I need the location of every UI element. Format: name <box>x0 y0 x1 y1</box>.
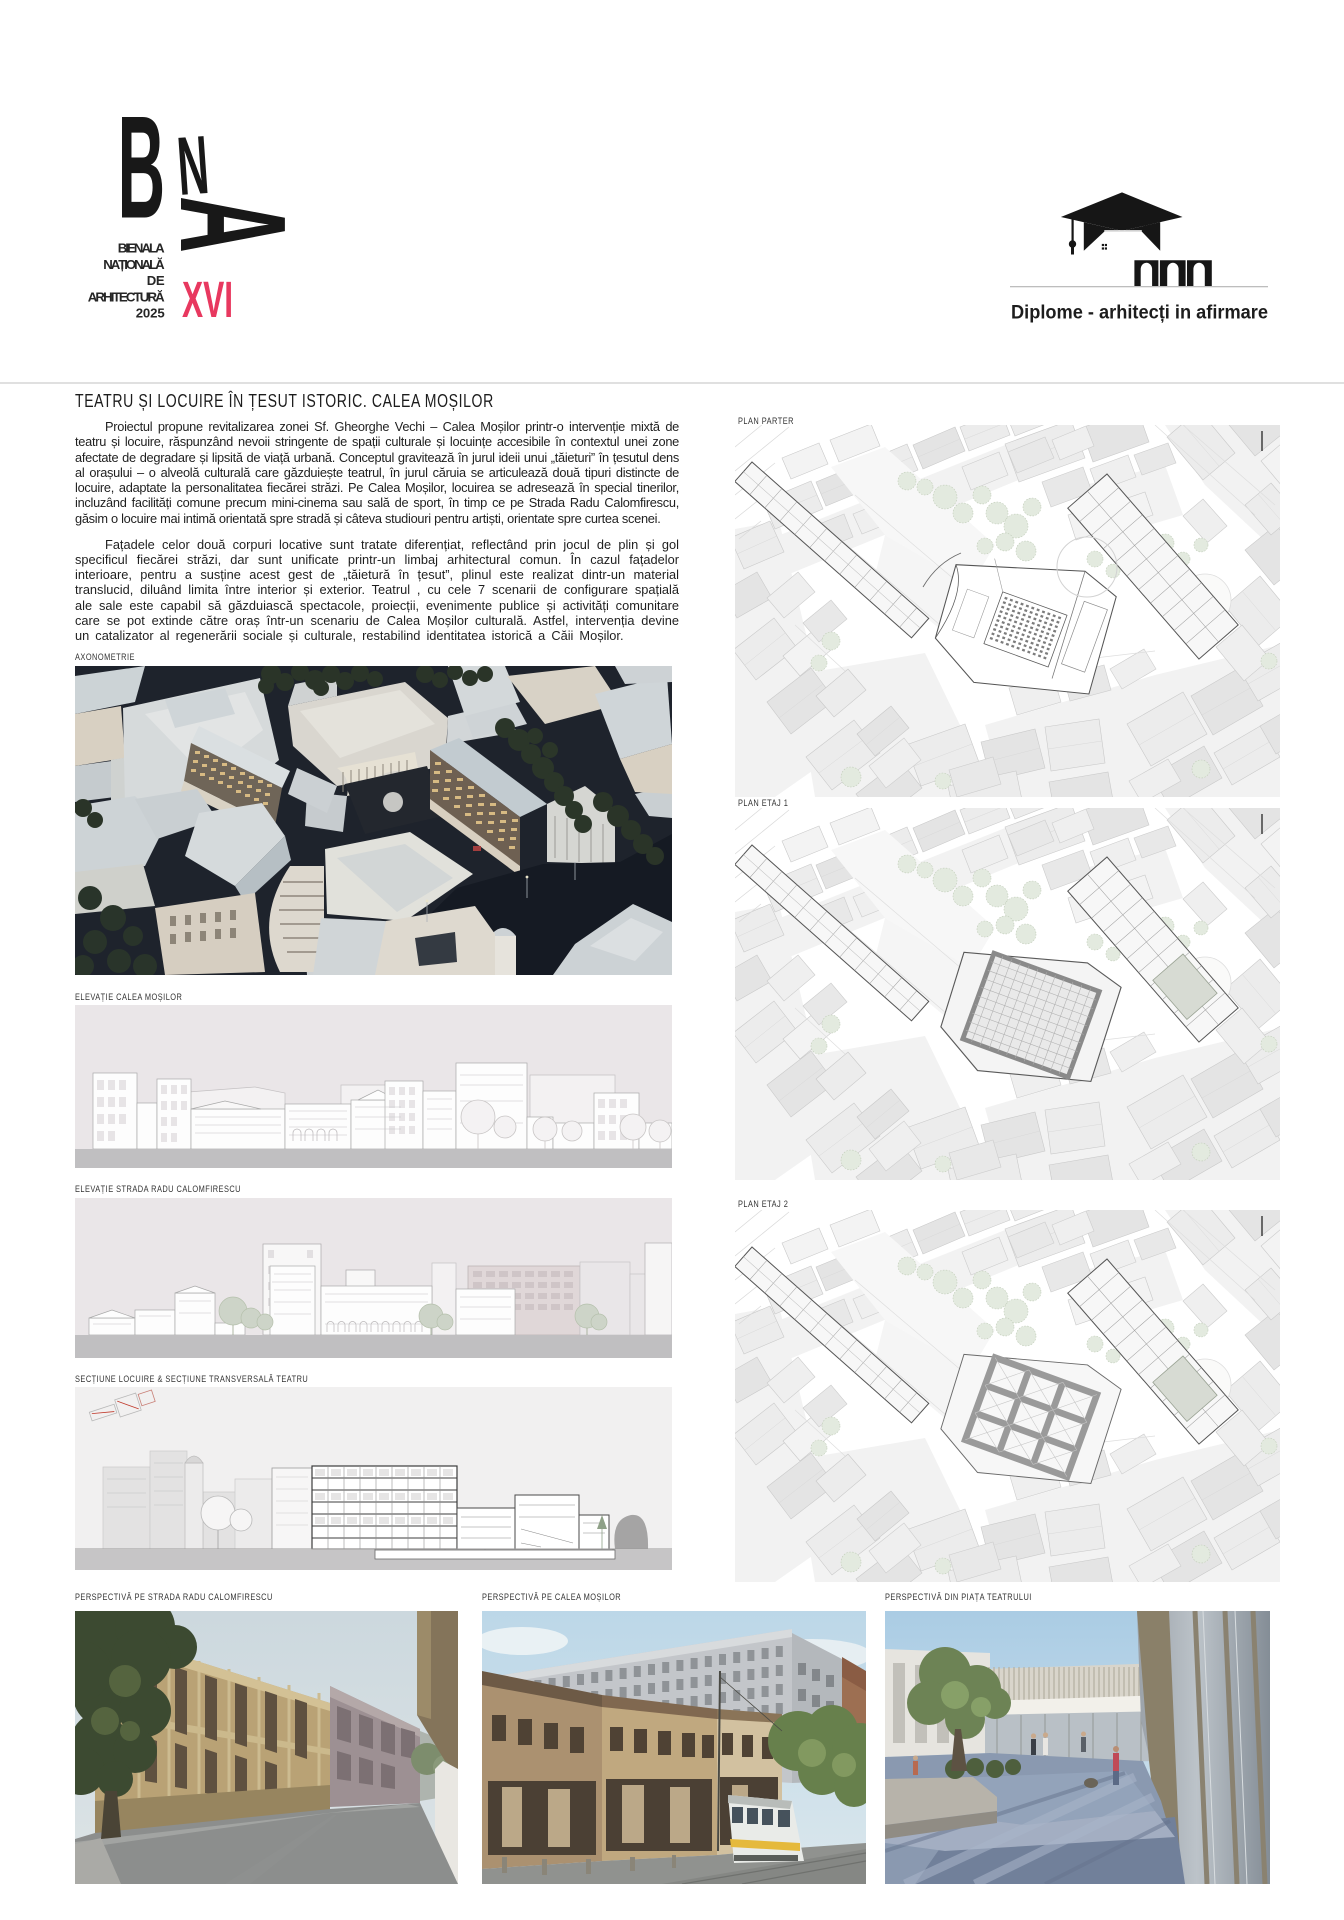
svg-text:A: A <box>149 196 315 253</box>
svg-text:2025: 2025 <box>136 306 165 321</box>
svg-text:ARHITECTURĂ: ARHITECTURĂ <box>88 289 165 304</box>
svg-text:Diplome - arhitecți in afirmar: Diplome - arhitecți in afirmare <box>1011 303 1268 324</box>
svg-text:DE: DE <box>147 273 165 288</box>
svg-text:BIENALA: BIENALA <box>118 241 165 256</box>
svg-text:XVI: XVI <box>182 271 233 328</box>
svg-text:NAȚIONALĂ: NAȚIONALĂ <box>103 257 165 272</box>
